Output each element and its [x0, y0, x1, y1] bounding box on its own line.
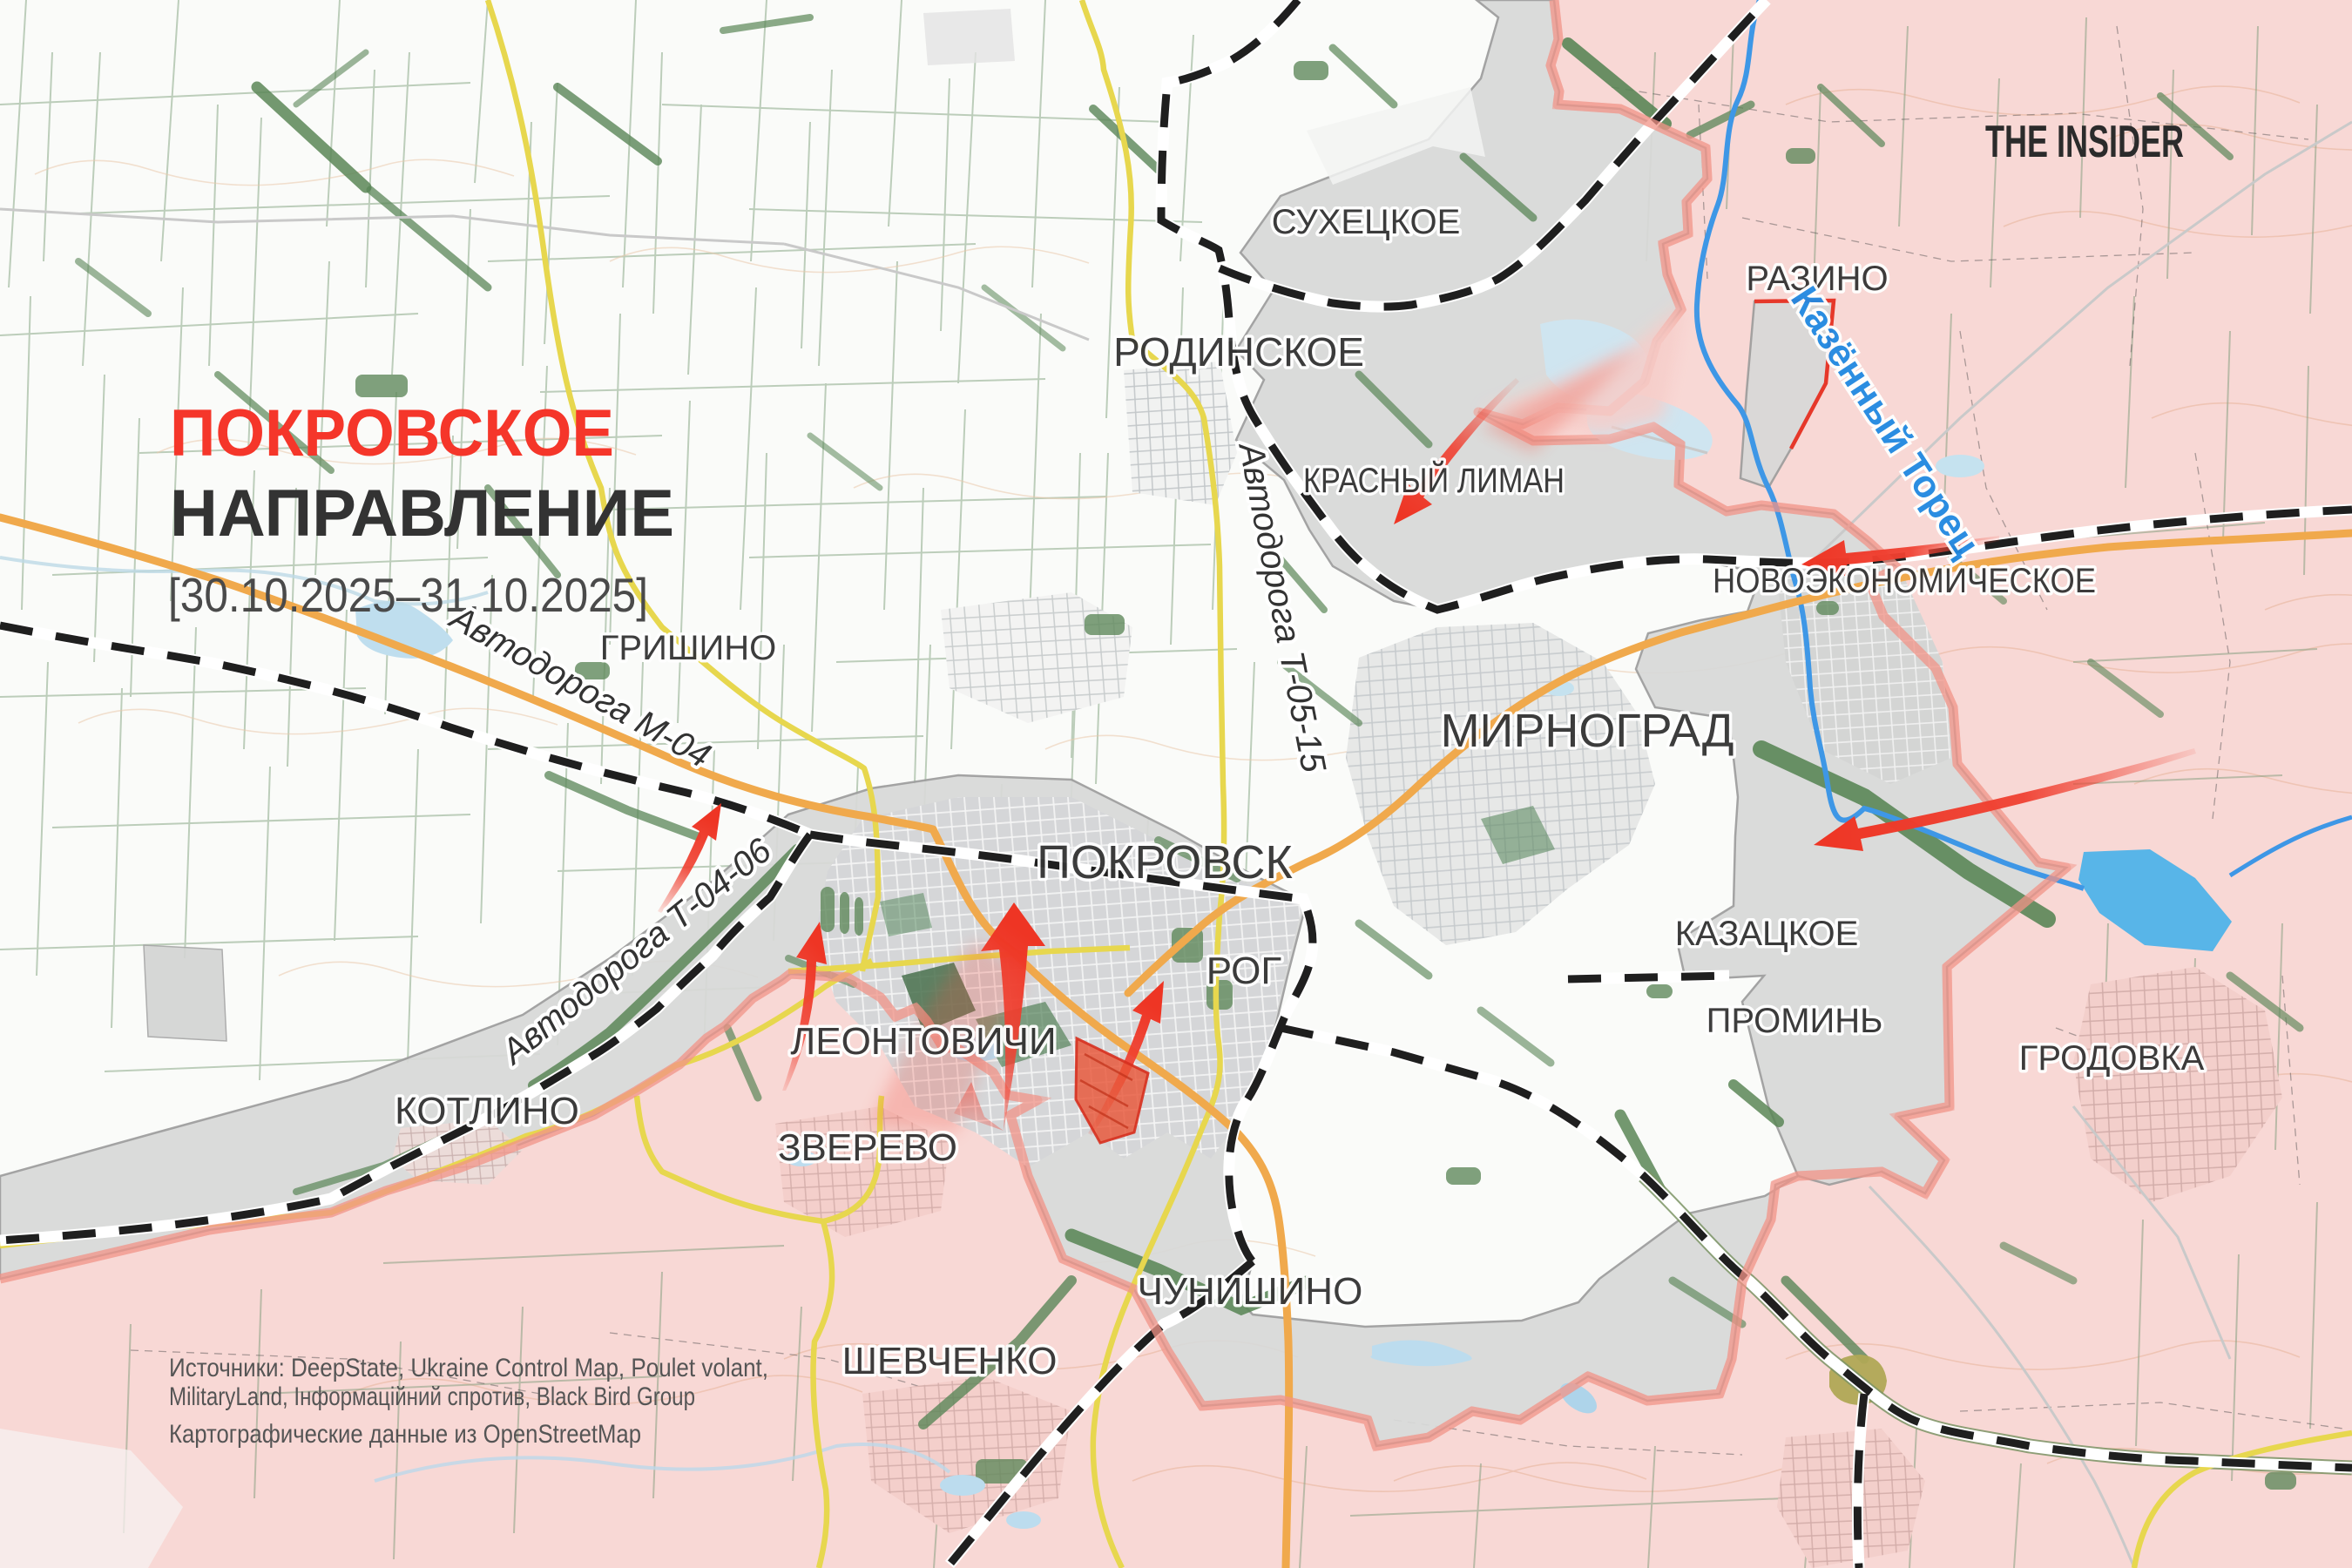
svg-text:ПОКРОВСК: ПОКРОВСК	[1037, 836, 1293, 889]
svg-text:РОДИНСКОЕ: РОДИНСКОЕ	[1113, 329, 1364, 375]
svg-text:Источники: DeepState, Ukraine: Источники: DeepState, Ukraine Control Ma…	[169, 1354, 768, 1382]
svg-text:ПОКРОВСКОЕ: ПОКРОВСКОЕ	[170, 396, 614, 470]
svg-text:КРАСНЫЙ ЛИМАН: КРАСНЫЙ ЛИМАН	[1303, 460, 1565, 500]
svg-text:Картографические данные из Ope: Картографические данные из OpenStreetMap	[169, 1420, 641, 1449]
svg-text:КОТЛИНО: КОТЛИНО	[395, 1090, 579, 1132]
svg-text:НОВОЭКОНОМИЧЕСКОЕ: НОВОЭКОНОМИЧЕСКОЕ	[1713, 562, 2096, 600]
svg-text:THE INSIDER: THE INSIDER	[1985, 117, 2184, 167]
svg-text:ШЕВЧЕНКО: ШЕВЧЕНКО	[842, 1340, 1058, 1382]
svg-text:MilitaryLand, Інформаційний сп: MilitaryLand, Інформаційний спротив, Bla…	[169, 1382, 695, 1411]
svg-text:ГРИШИНО: ГРИШИНО	[600, 629, 777, 667]
svg-text:СУХЕЦКОЕ: СУХЕЦКОЕ	[1272, 203, 1461, 241]
svg-text:[30.10.2025–31.10.2025]: [30.10.2025–31.10.2025]	[168, 568, 648, 622]
svg-text:НАПРАВЛЕНИЕ: НАПРАВЛЕНИЕ	[170, 476, 674, 551]
svg-text:ГРОДОВКА: ГРОДОВКА	[2019, 1039, 2205, 1078]
svg-text:ПРОМИНЬ: ПРОМИНЬ	[1707, 1002, 1883, 1040]
svg-text:ЗВЕРЕВО: ЗВЕРЕВО	[778, 1126, 957, 1169]
svg-text:ЧУНИШИНО: ЧУНИШИНО	[1138, 1270, 1363, 1313]
svg-text:МИРНОГРАД: МИРНОГРАД	[1441, 705, 1734, 757]
svg-text:РОГ: РОГ	[1206, 950, 1282, 992]
svg-text:ЛЕОНТОВИЧИ: ЛЕОНТОВИЧИ	[790, 1020, 1056, 1063]
svg-text:КАЗАЦКОЕ: КАЗАЦКОЕ	[1675, 915, 1859, 953]
